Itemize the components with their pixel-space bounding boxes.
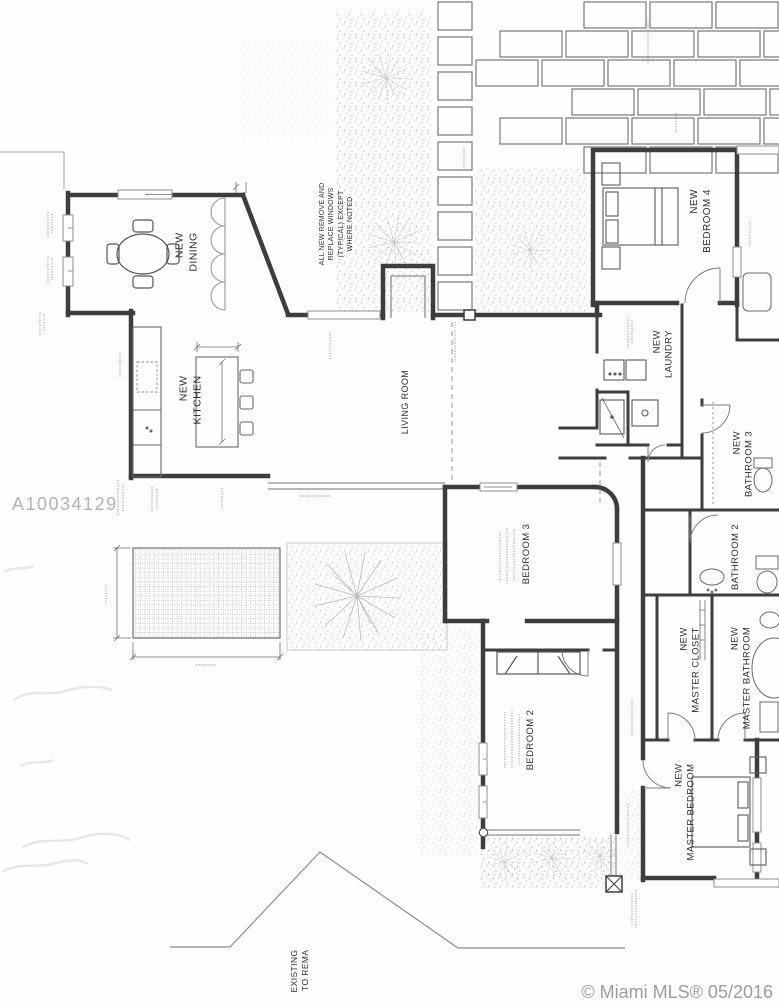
- windows-note: ALL NEW REMOVE AND REPLACE WINDOWS (TYPI…: [318, 183, 356, 266]
- bedroom4-bed: [602, 163, 678, 269]
- room-label-bedroom3: BEDROOM 3: [521, 524, 533, 585]
- existing-structure-label: EXISTING TO REMA: [289, 950, 311, 993]
- floor-plan-sheet: NEW DINING NEW KITCHEN LIVING ROOM NEW B…: [0, 0, 779, 1008]
- room-label-laundry: NEW LAUNDRY: [652, 330, 677, 378]
- patio-deck: [133, 548, 280, 638]
- listing-id-watermark: A10034129: [12, 494, 118, 515]
- mls-copyright-watermark: © Miami MLS® 05/2016: [581, 982, 773, 1003]
- dining-table-set: [107, 220, 179, 288]
- bedroom2-closets: [497, 652, 580, 674]
- room-label-master-closet: NEW MASTER CLOSET: [679, 627, 704, 712]
- vegetation-stipple: [240, 14, 642, 888]
- room-label-bathroom2: BATHROOM 2: [730, 524, 742, 590]
- room-label-master-bathroom: NEW MASTER BATHROOM: [730, 627, 755, 729]
- room-label-bedroom4: NEW BEDROOM 4: [688, 189, 714, 253]
- room-label-master-bedroom: NEW MASTER BEDROOM: [674, 764, 699, 861]
- paver-field: [476, 2, 779, 173]
- room-label-kitchen: NEW KITCHEN: [177, 376, 204, 425]
- faint-scan-marks: [2, 566, 130, 872]
- paver-walkway: [438, 2, 472, 310]
- planter-box: [287, 543, 447, 650]
- room-label-dining: NEW DINING: [173, 232, 200, 271]
- entry-window-arcs: [211, 198, 225, 310]
- room-label-living: LIVING ROOM: [400, 370, 412, 434]
- room-label-bathroom3: NEW BATHROOM 3: [732, 431, 757, 497]
- room-label-bedroom2: BEDROOM 2: [525, 710, 537, 771]
